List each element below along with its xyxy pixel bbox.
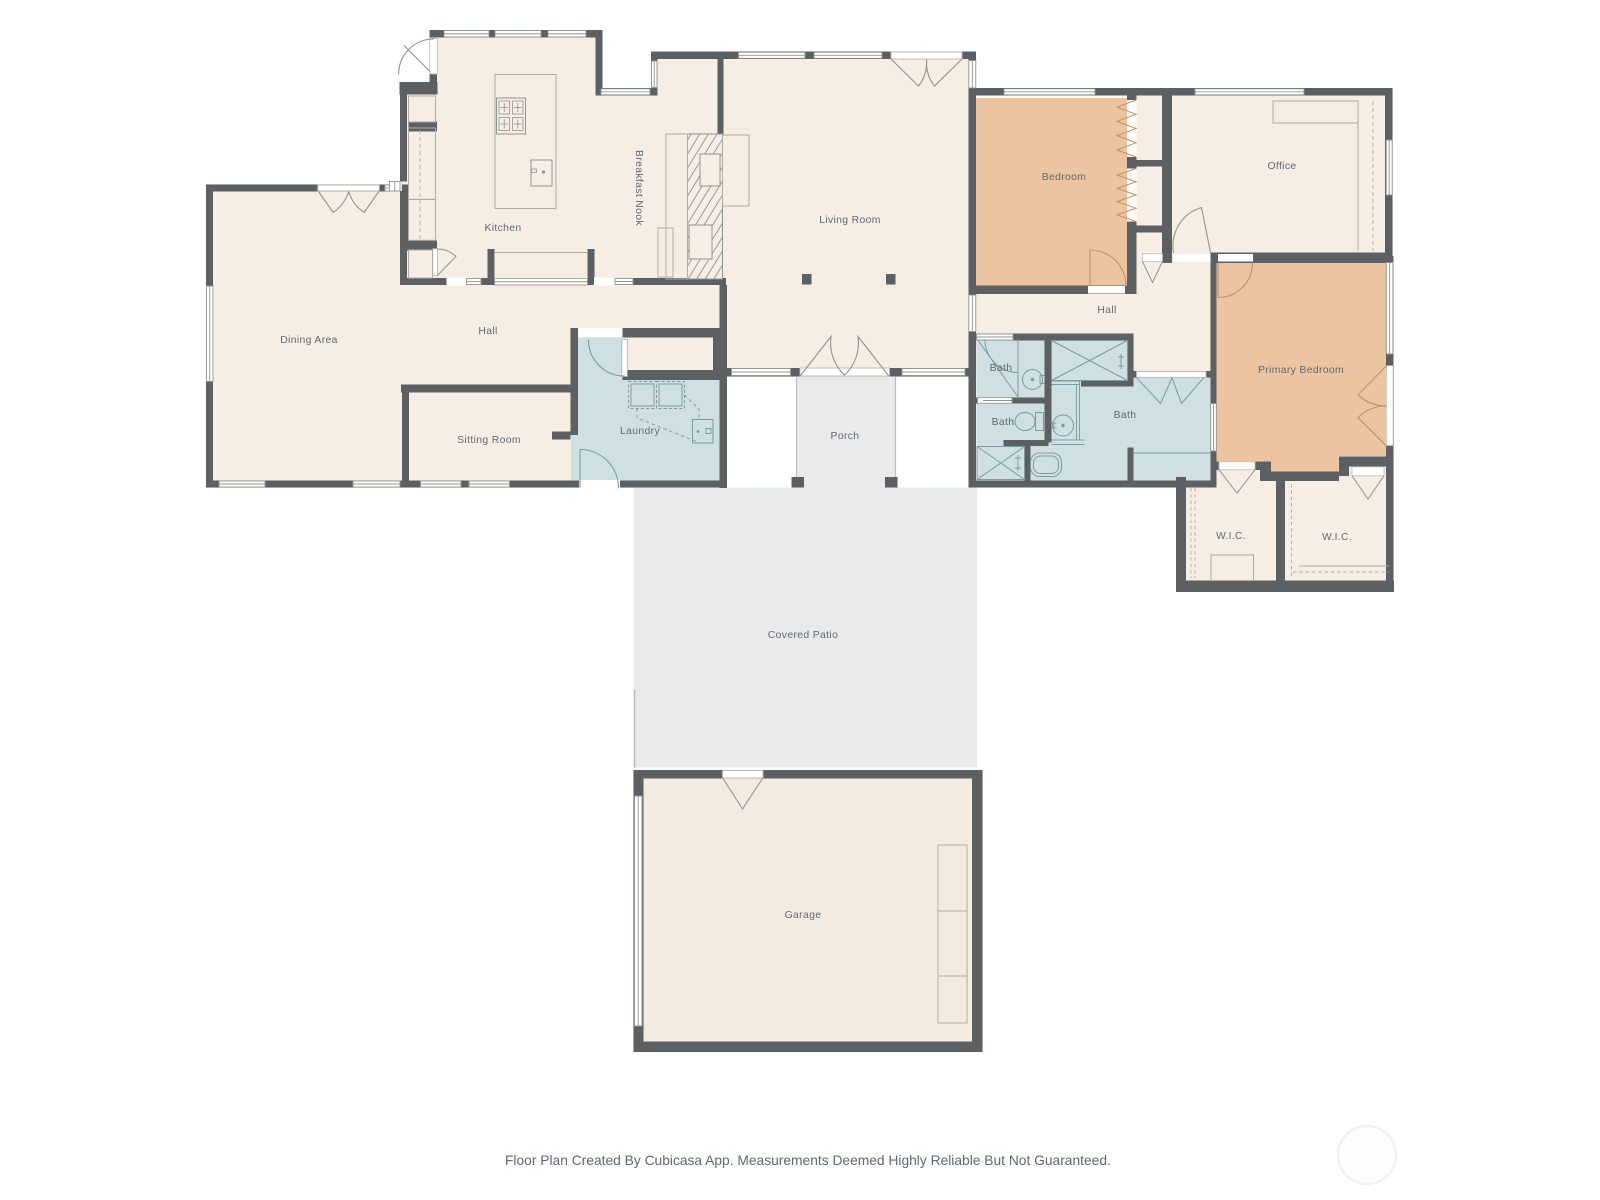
svg-text:Hall: Hall	[1097, 305, 1116, 316]
svg-text:Bedroom: Bedroom	[1042, 172, 1087, 183]
svg-text:Covered Patio: Covered Patio	[768, 630, 838, 641]
svg-text:Primary Bedroom: Primary Bedroom	[1258, 365, 1344, 376]
svg-text:W.I.C.: W.I.C.	[1216, 531, 1246, 542]
svg-text:Office: Office	[1267, 161, 1296, 172]
svg-text:Kitchen: Kitchen	[484, 223, 521, 234]
svg-text:Breakfast Nook: Breakfast Nook	[633, 150, 644, 226]
svg-text:Bath: Bath	[992, 417, 1015, 428]
svg-text:Sitting Room: Sitting Room	[457, 435, 521, 446]
svg-text:Hall: Hall	[478, 326, 497, 337]
svg-text:Laundry: Laundry	[620, 426, 660, 437]
svg-text:Bath: Bath	[990, 363, 1013, 374]
svg-text:Dining Area: Dining Area	[280, 335, 338, 346]
svg-text:Living Room: Living Room	[819, 215, 881, 226]
svg-text:W.I.C.: W.I.C.	[1322, 532, 1352, 543]
svg-text:Bath: Bath	[1114, 410, 1137, 421]
svg-text:Garage: Garage	[785, 910, 822, 921]
svg-text:Porch: Porch	[831, 431, 860, 442]
svg-text:Floor Plan Created By Cubicasa: Floor Plan Created By Cubicasa App. Meas…	[505, 1153, 1111, 1168]
